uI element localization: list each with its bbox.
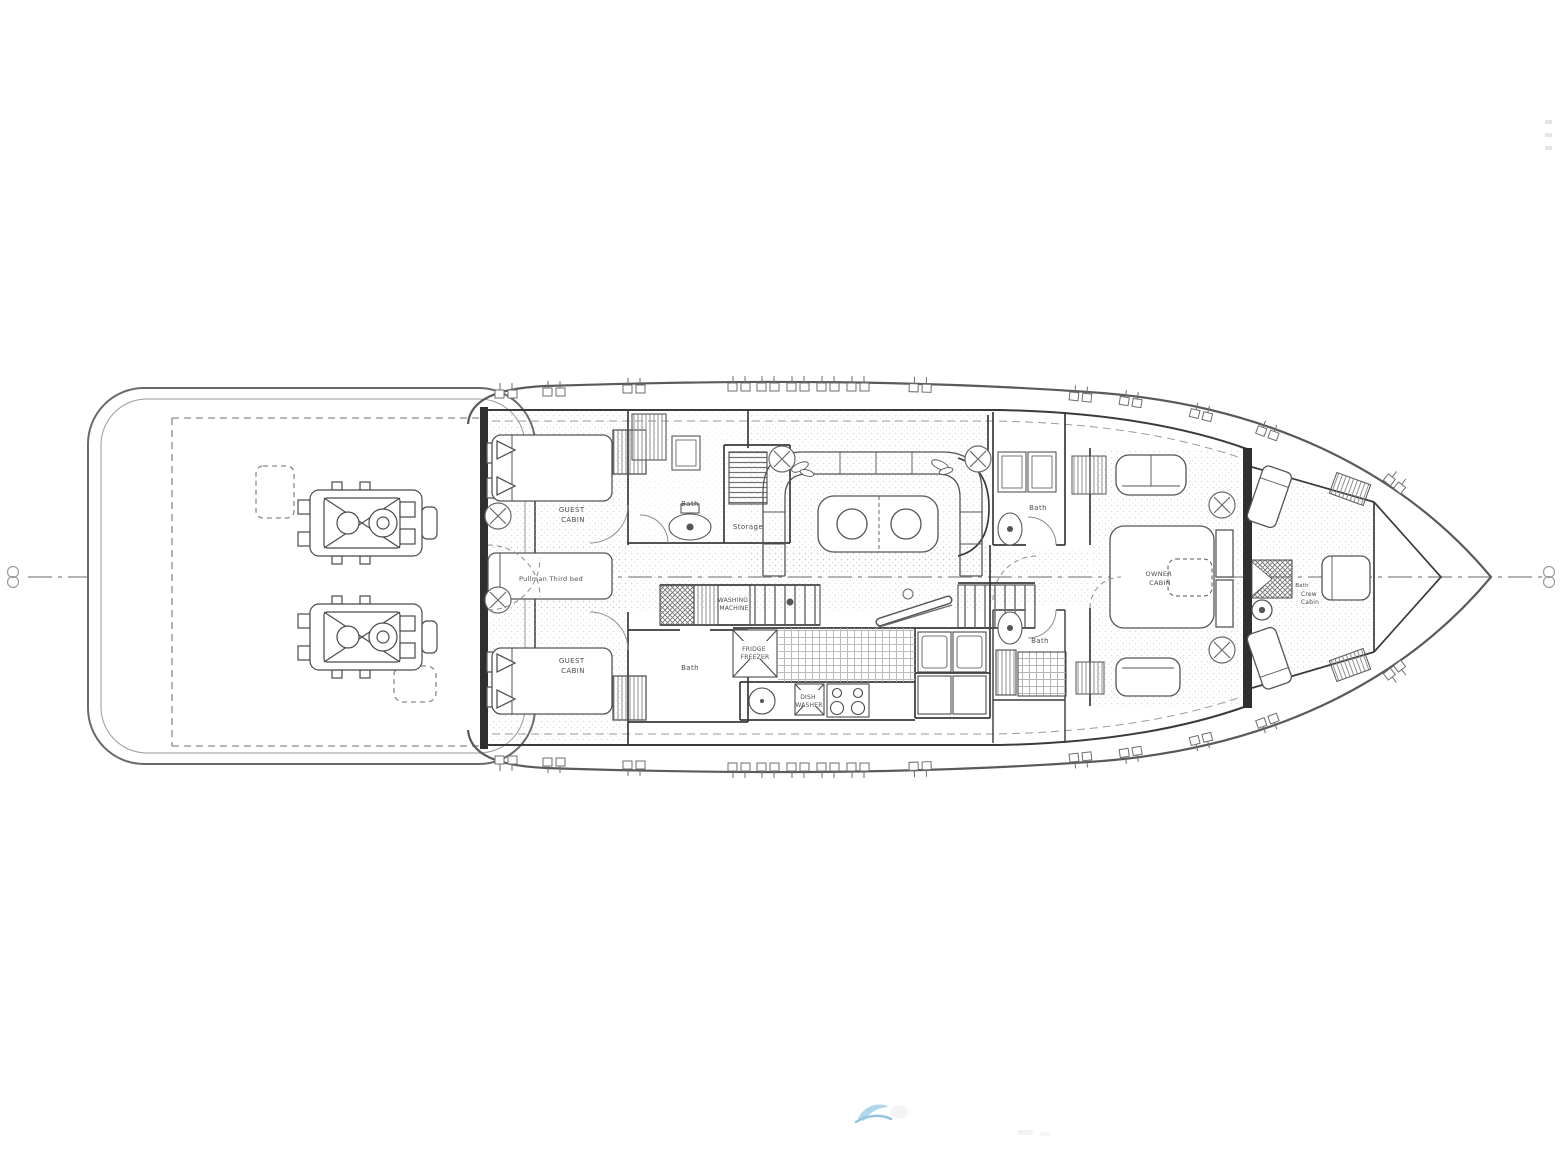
centerline-marker-icon — [1544, 567, 1555, 588]
companionway-stairs — [750, 585, 820, 625]
label-bath-forward: Bath — [681, 500, 699, 508]
galley-floor — [778, 628, 915, 682]
hatch-icon — [1209, 492, 1235, 518]
owner-seat — [1116, 658, 1180, 696]
watermark-logo — [856, 1104, 1050, 1136]
label-bath-aft-lower: Bath — [681, 664, 699, 672]
swim-platform-aft-deck — [88, 388, 535, 764]
staircase-forward — [729, 452, 767, 504]
headboard — [1216, 530, 1233, 577]
crew-bed — [1322, 556, 1370, 600]
crew-bulkhead — [1243, 448, 1252, 708]
dinette-table — [818, 496, 938, 552]
label-bath-mid-upper: Bath — [1029, 504, 1047, 512]
starboard-engine — [298, 596, 437, 678]
label-bath-mid-lower: Bath — [1031, 637, 1049, 645]
hatch-icon — [769, 446, 795, 472]
port-engine — [298, 482, 437, 564]
shower-tile-floor — [1018, 652, 1066, 696]
wardrobe — [613, 676, 646, 720]
galley — [733, 628, 986, 717]
label-owner-cabin: OWNER CABIN — [1146, 570, 1175, 587]
stair-treads — [694, 585, 718, 625]
label-pullman-bed: Pullman Third bed — [519, 575, 583, 583]
guest-bed — [492, 648, 612, 714]
bath-mid-upper-furniture — [998, 452, 1056, 545]
centerline-marker-icon — [8, 567, 19, 588]
edge-marks — [1545, 120, 1552, 150]
hatch-icon — [1209, 637, 1235, 663]
headboard — [1216, 580, 1233, 627]
galley-stairs — [958, 585, 1035, 628]
guest-bed — [492, 435, 612, 501]
label-crew-bath: Bath — [1295, 583, 1309, 589]
hatch-icon — [965, 446, 991, 472]
hatch-icon — [485, 503, 511, 529]
label-washing-machine: WASHING MACHINE — [718, 597, 750, 612]
shower — [632, 414, 666, 460]
wardrobe — [1076, 662, 1104, 694]
label-crew-cabin: Crew Cabin — [1301, 591, 1319, 606]
yacht-floor-plan: GUEST CABIN Pullman Third bed GUEST CABI… — [0, 0, 1560, 1170]
deck-plan-svg: GUEST CABIN Pullman Third bed GUEST CABI… — [0, 0, 1560, 1170]
washing-machine-unit — [660, 585, 694, 625]
wardrobe — [1072, 456, 1106, 494]
label-storage: Storage — [733, 523, 763, 531]
crew-area — [1243, 448, 1441, 708]
label-fridge-freezer: FRIDGE FREEZER — [741, 646, 770, 661]
shower-mid-bath — [996, 650, 1016, 695]
